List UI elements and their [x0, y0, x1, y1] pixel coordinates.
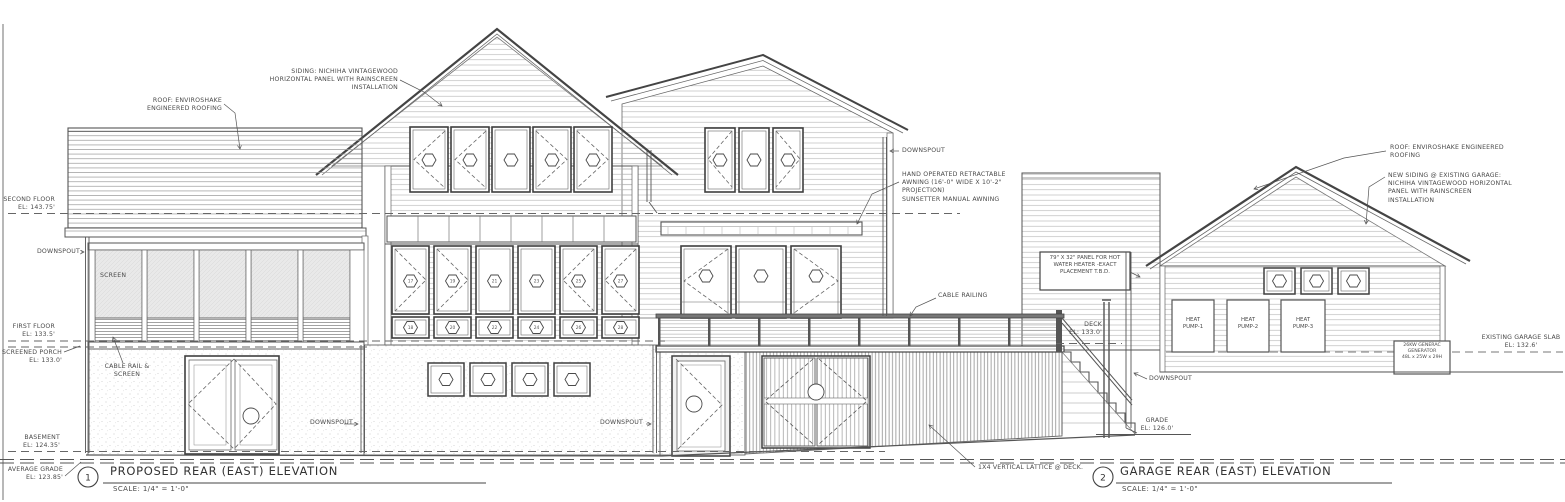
generator-label: 26KW GENERAC GENERATOR 48L x 25W x 29H — [1395, 343, 1449, 361]
cable-rail-screen-note: CABLE RAIL & SCREEN — [104, 363, 150, 379]
basement-marker: BASEMENT EL: 124.35' — [23, 434, 60, 450]
downspout-label-b1: DOWNSPOUT — [310, 419, 353, 427]
drawing-title-1: PROPOSED REAR (EAST) ELEVATION — [110, 464, 338, 478]
awning — [661, 222, 862, 235]
siding-main-note: SIDING: NICHIHA VINTAGEWOOD HORIZONTAL P… — [270, 68, 398, 93]
second-floor-windows — [410, 127, 612, 192]
water-heater-panel-note: 79" X 32" PANEL FOR HOT WATER HEATER -EX… — [1042, 255, 1128, 275]
elevation-linework: 17 19 21 23 25 27 18 20 22 24 26 28 — [0, 0, 1565, 502]
roof-garage-note: ROOF: ENVIROSHAKE ENGINEERED ROOFING — [1390, 144, 1504, 160]
svg-text:22: 22 — [492, 325, 498, 331]
deck-marker: DECK EL: 133.0' — [1069, 321, 1102, 337]
svg-text:23: 23 — [534, 279, 540, 285]
property-line — [0, 460, 1565, 464]
wing-lower-windows — [681, 246, 841, 318]
drawing-title-2: GARAGE REAR (EAST) ELEVATION — [1120, 464, 1331, 478]
svg-text:26: 26 — [576, 325, 582, 331]
grade-marker: GRADE EL: 126.0' — [1128, 417, 1186, 433]
wing-upper-windows — [705, 128, 803, 192]
elevation-drawing-sheet: 17 19 21 23 25 27 18 20 22 24 26 28 — [0, 0, 1565, 502]
svg-text:25: 25 — [576, 279, 582, 285]
deck-and-railing — [656, 310, 1064, 352]
under-deck-door — [672, 356, 730, 456]
heat-pump-1-label: HEAT PUMP-1 — [1172, 317, 1214, 331]
svg-text:28: 28 — [618, 325, 624, 331]
awning-note: HAND OPERATED RETRACTABLE AWNING (16'-0"… — [902, 171, 1006, 204]
garage-slab-marker: EXISTING GARAGE SLAB EL: 132.6' — [1478, 334, 1564, 350]
under-deck-double-doors — [762, 356, 870, 448]
drawing-scale-2: SCALE: 1/4" = 1'-0" — [1122, 485, 1198, 493]
cable-railing-note: CABLE RAILING — [938, 292, 988, 300]
svg-text:24: 24 — [534, 325, 540, 331]
svg-text:2: 2 — [1100, 474, 1106, 484]
downspout-label-garage: DOWNSPOUT — [1149, 375, 1192, 383]
lattice-note: 1X4 VERTICAL LATTICE @ DECK. — [978, 464, 1083, 472]
transom-band — [385, 216, 638, 244]
svg-text:20: 20 — [450, 325, 456, 331]
svg-text:18: 18 — [408, 325, 414, 331]
drawing-scale-1: SCALE: 1/4" = 1'-0" — [113, 485, 189, 493]
svg-text:17: 17 — [408, 279, 414, 285]
screen-label: SCREEN — [100, 272, 126, 280]
screened-porch-marker: SCREENED PORCH EL: 133.0' — [2, 349, 62, 365]
screened-porch — [88, 243, 364, 349]
downspout-label-main: DOWNSPOUT — [902, 147, 945, 155]
svg-text:27: 27 — [618, 279, 624, 285]
average-grade-marker: AVERAGE GRADE EL: 123.85' — [8, 466, 63, 482]
first-floor-marker: FIRST FLOOR EL: 133.5' — [13, 323, 55, 339]
basement-french-door — [185, 356, 279, 454]
svg-text:19: 19 — [450, 279, 456, 285]
roof-main-note: ROOF: ENVIROSHAKE ENGINEERED ROOFING — [147, 97, 222, 113]
siding-garage-note: NEW SIDING @ EXISTING GARAGE: NICHIHA VI… — [1388, 172, 1512, 205]
downspout-label-b2: DOWNSPOUT — [600, 419, 643, 427]
heat-pump-2-label: HEAT PUMP-2 — [1227, 317, 1269, 331]
svg-text:1: 1 — [85, 474, 91, 484]
svg-text:21: 21 — [492, 279, 498, 285]
second-floor-marker: SECOND FLOOR EL: 143.75' — [3, 196, 55, 212]
downspout-label-porch: DOWNSPOUT — [37, 248, 80, 256]
heat-pump-3-label: HEAT PUMP-3 — [1281, 317, 1325, 331]
